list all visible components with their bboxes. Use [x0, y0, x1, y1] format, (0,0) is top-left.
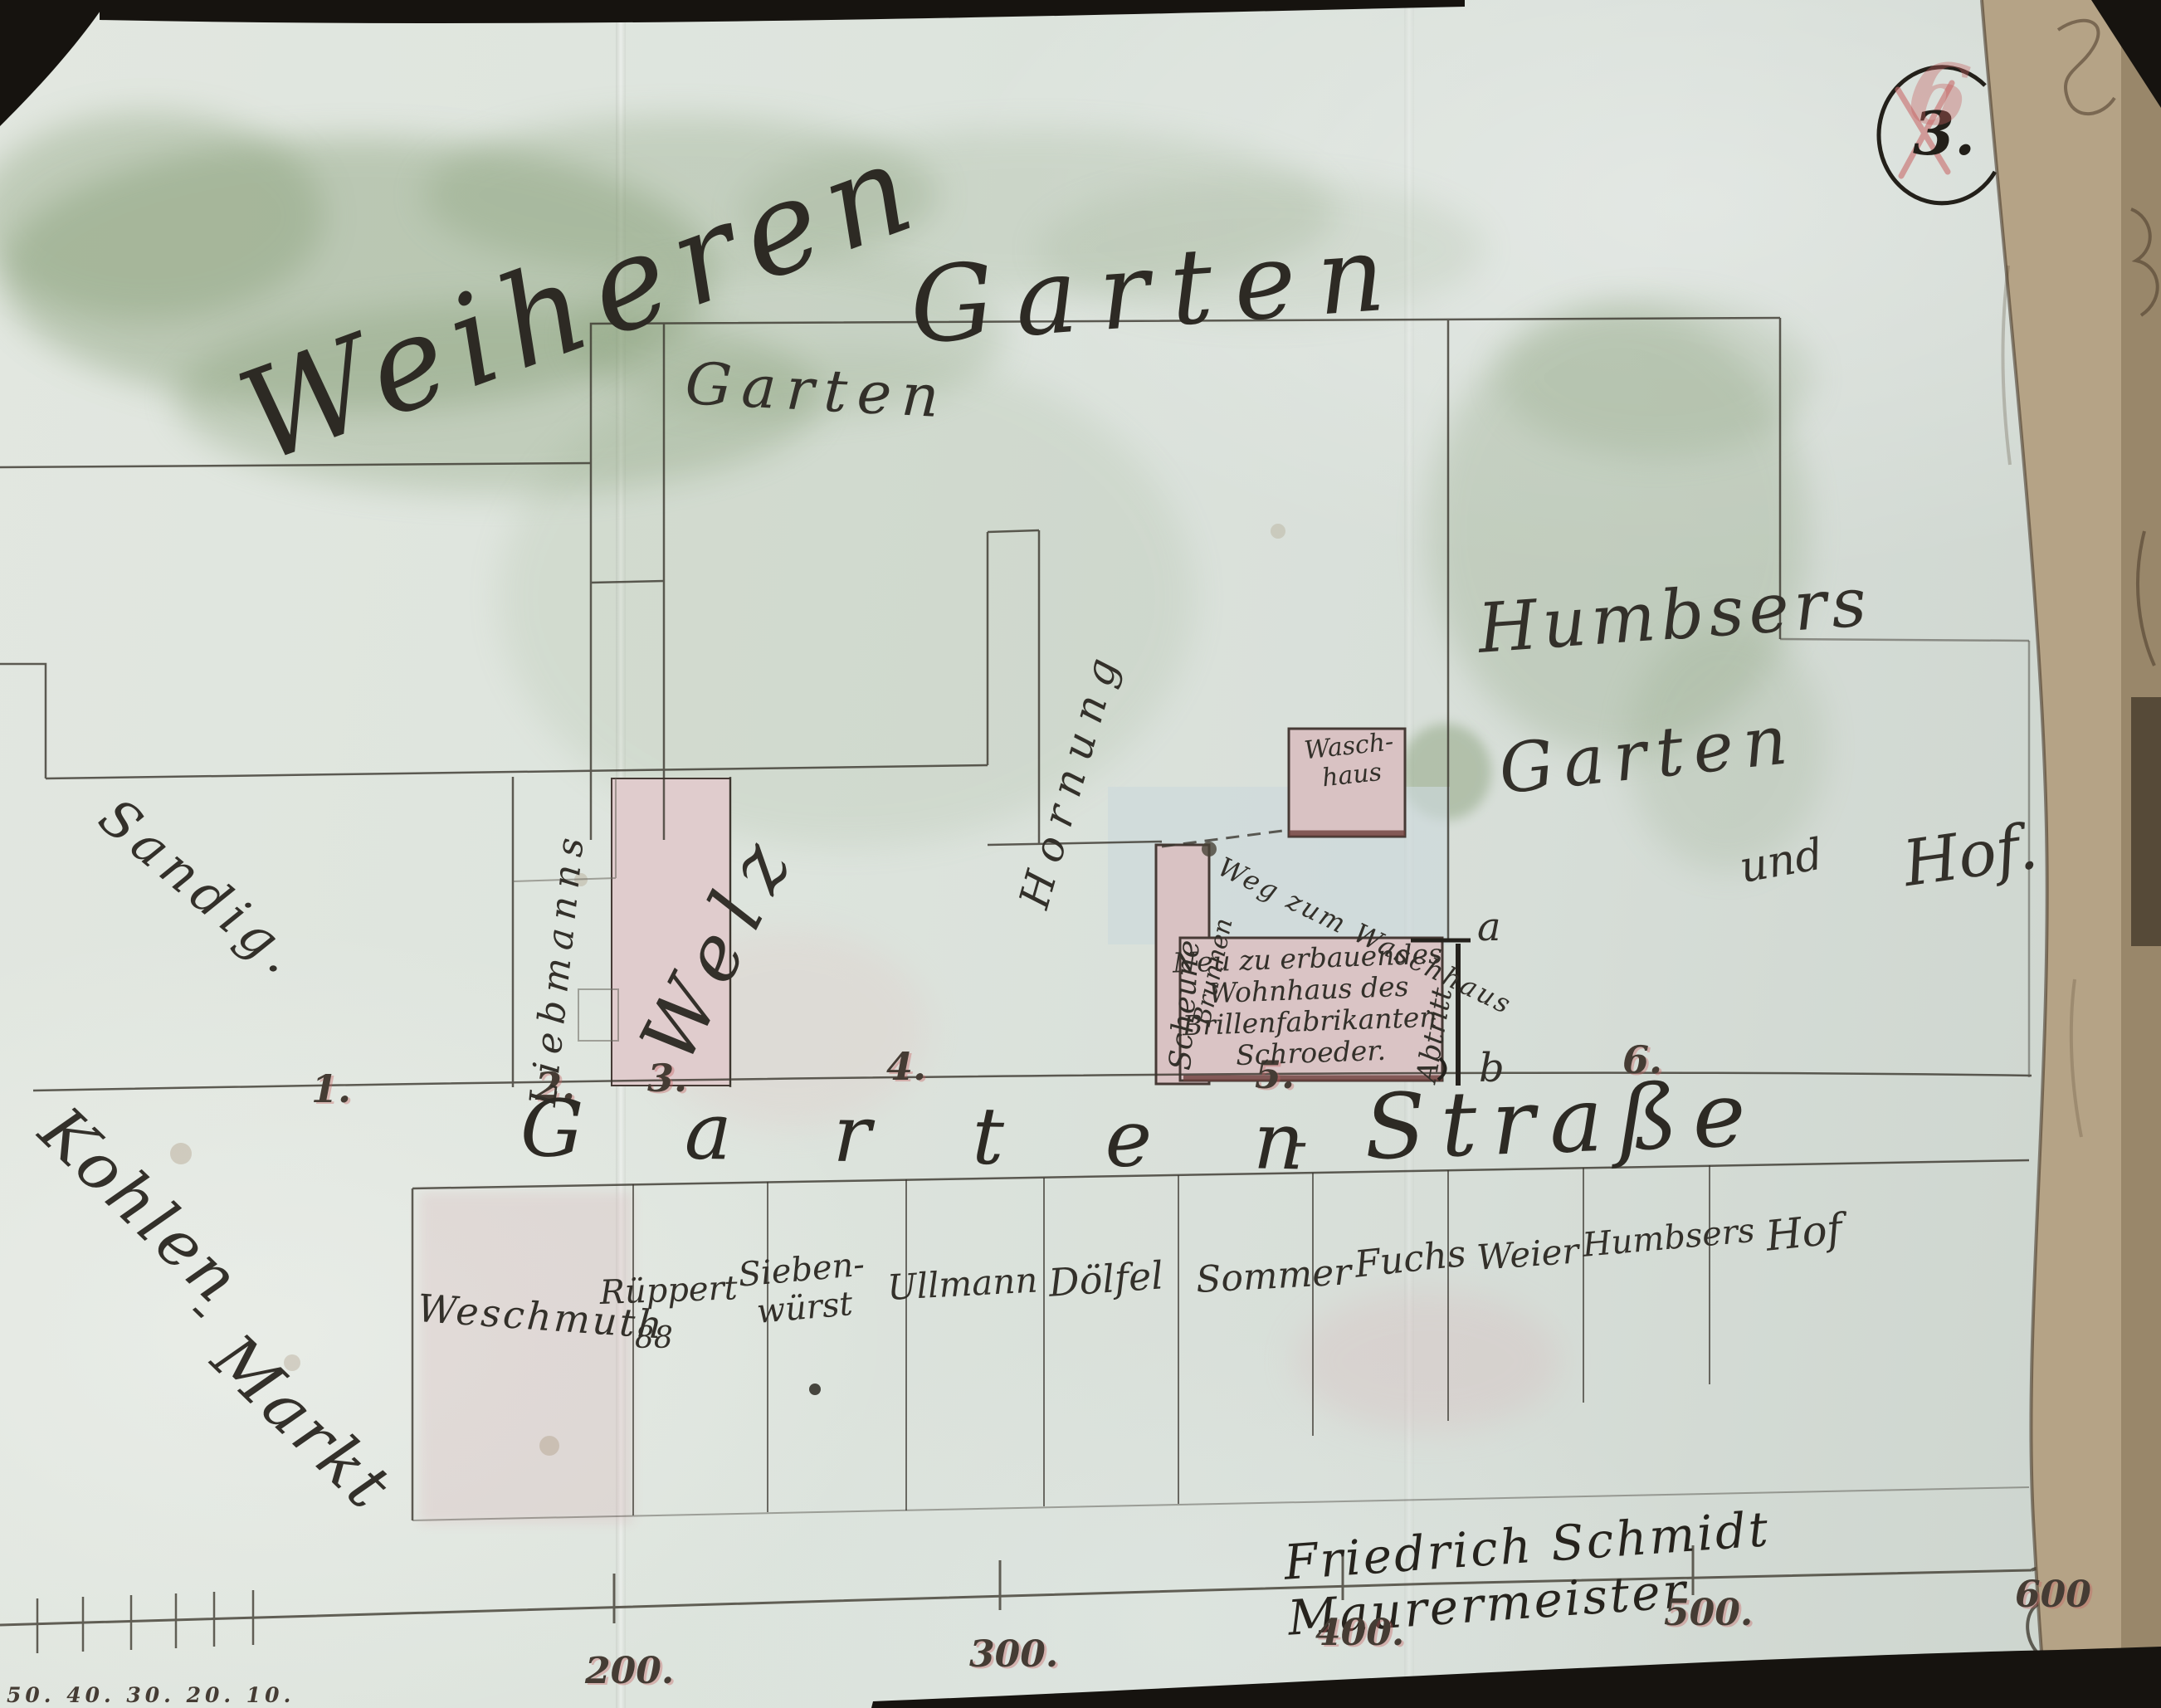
misc-washes — [419, 787, 1560, 1524]
scale-bar — [0, 1545, 2045, 1657]
building-schroeder-house — [1180, 938, 1442, 1081]
building-washhouse — [1289, 729, 1405, 837]
green-watercolor-washes — [0, 112, 1826, 871]
map-linework — [0, 0, 2161, 1708]
well-dot — [1202, 842, 1217, 856]
building-parcel3-welz — [612, 778, 730, 1086]
pencil-sublines — [513, 778, 618, 1041]
ink-blot — [809, 1383, 821, 1395]
scanned-map-photo: 3. 6 Weiheren Garten Garten Humbsers Gar… — [0, 0, 2161, 1708]
